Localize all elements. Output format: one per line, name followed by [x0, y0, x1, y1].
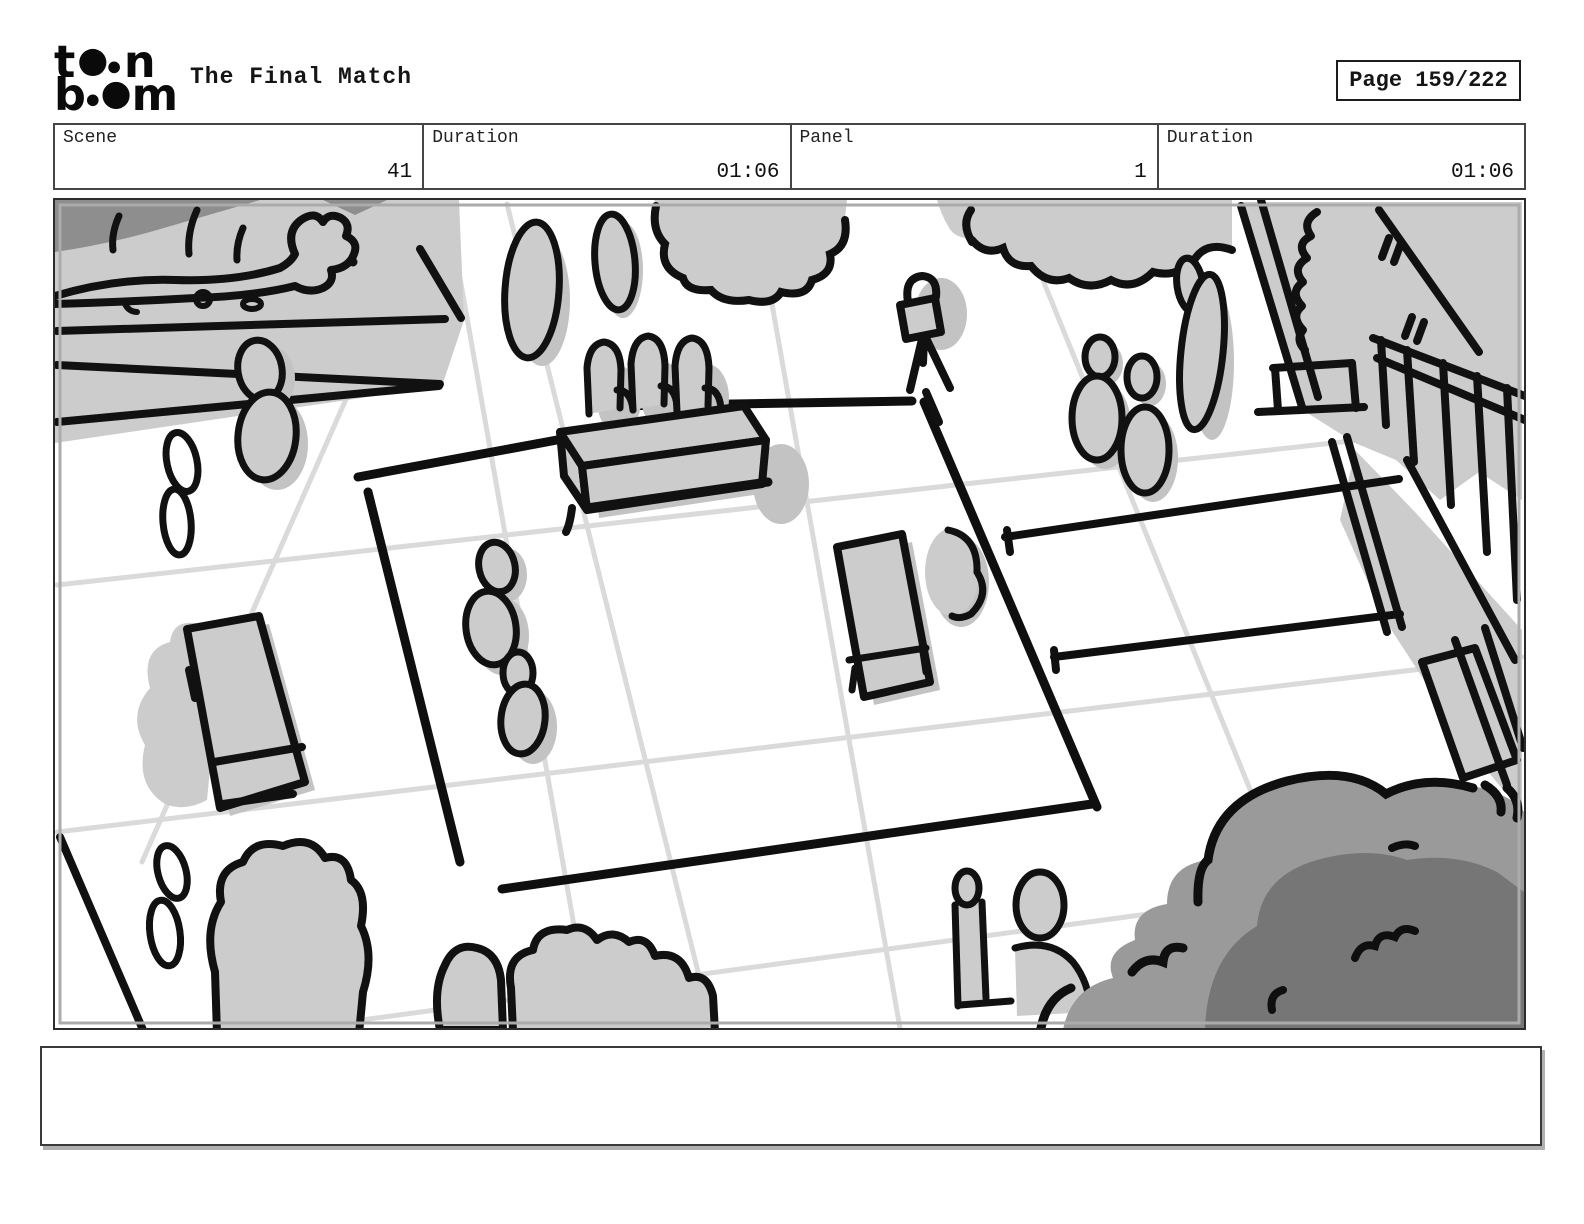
scene-info-row: Scene 41 Duration 01:06 Panel 1 Duration…: [53, 123, 1526, 190]
ground-line: [60, 837, 143, 1028]
storyboard-panel: [53, 198, 1526, 1030]
figures-bottom-right: [954, 871, 1091, 1016]
scene-duration-cell: Duration 01:06: [422, 125, 789, 188]
dark-bushes: [1041, 774, 1524, 1028]
bench-left: [137, 616, 315, 816]
panel-sketch: [55, 200, 1524, 1028]
logo-small-dot-2: [87, 94, 99, 106]
logo-letter-m: m: [132, 69, 178, 112]
figure-topdown: [160, 430, 203, 557]
bush-bottom-left: [210, 842, 368, 1028]
cloud-top-center: [654, 200, 847, 302]
toonboom-logo: t n b m: [54, 44, 182, 112]
scene-label: Scene: [63, 128, 117, 148]
panel-duration-value: 01:06: [1451, 161, 1514, 184]
storyboard-page: t n b m The Final Match Page 159/222 Sce…: [0, 0, 1584, 1224]
walking-figures: [1072, 337, 1178, 502]
panel-cell: Panel 1: [790, 125, 1157, 188]
panel-duration-label: Duration: [1167, 128, 1253, 148]
page-number: Page 159/222: [1349, 68, 1507, 93]
scene-duration-value: 01:06: [716, 161, 779, 184]
scene-value: 41: [387, 161, 412, 184]
tree: [500, 212, 643, 366]
bushes-bottom-center: [437, 928, 715, 1028]
scene-cell: Scene 41: [55, 125, 422, 188]
panel-value: 1: [1134, 161, 1147, 184]
building-top-right: [1241, 200, 1524, 812]
bench-court-right: [837, 528, 989, 705]
project-title: The Final Match: [190, 64, 412, 90]
panel-label: Panel: [800, 128, 854, 148]
caption-box: [40, 1046, 1542, 1146]
figure-bottom-left: [146, 842, 193, 967]
logo-small-dot-1: [108, 62, 120, 74]
page-number-box: Page 159/222: [1336, 60, 1521, 101]
logo-big-dot-2: [102, 82, 129, 109]
logo-letter-b: b: [54, 69, 86, 112]
scene-duration-label: Duration: [432, 128, 518, 148]
side-court-lines: [1005, 479, 1400, 670]
tall-tree: [1173, 256, 1234, 440]
court-figures: [461, 539, 557, 764]
panel-duration-cell: Duration 01:06: [1157, 125, 1524, 188]
